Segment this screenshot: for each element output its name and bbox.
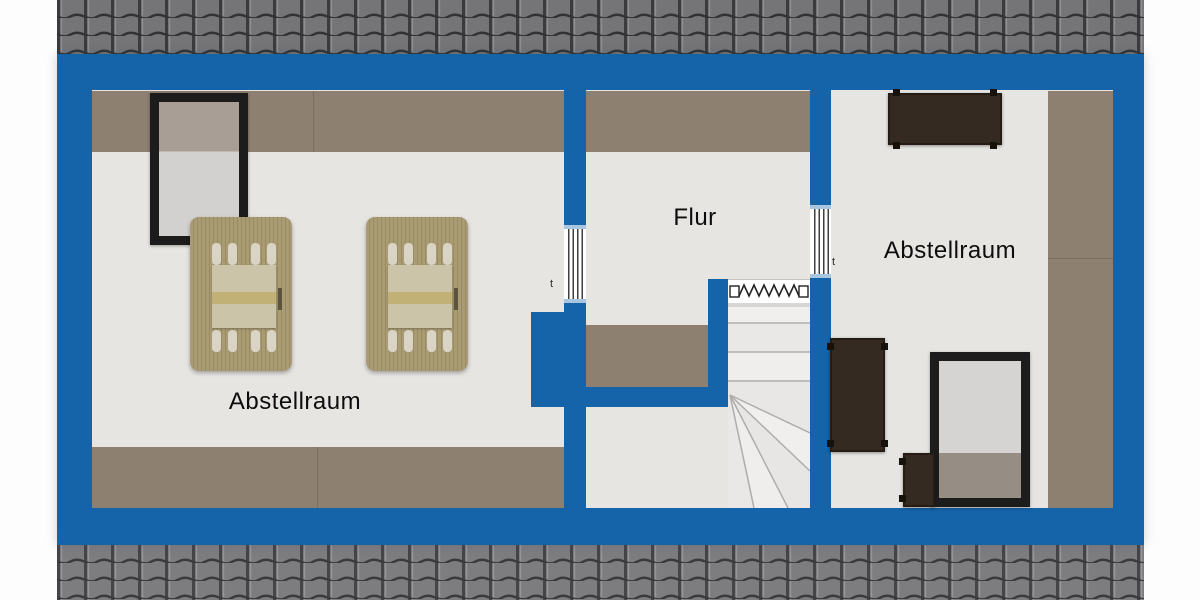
sloped-ceiling-strip-flur-top <box>586 91 810 152</box>
room-label-abstellraum-right: Abstellraum <box>850 237 1050 265</box>
room-label-flur: Flur <box>645 204 745 232</box>
wall-stair-left <box>708 279 728 407</box>
interior-window-left-icon <box>564 225 586 303</box>
interior-window-right-icon <box>810 205 831 278</box>
lounger-1 <box>190 217 292 371</box>
roof-tiles-bottom-icon <box>57 545 1144 600</box>
table-top <box>888 93 1002 145</box>
bench <box>830 338 885 452</box>
door-tick-right: t <box>832 257 835 267</box>
winder-stairs-icon <box>728 303 810 508</box>
lounger-2 <box>366 217 468 371</box>
wall-pier-block <box>531 312 586 407</box>
sloped-ceiling-strip-flur-lower <box>586 325 708 387</box>
skylight-window-right-icon <box>930 352 1030 507</box>
room-label-abstellraum-left: Abstellraum <box>195 388 395 416</box>
floor-plan-canvas: t t <box>0 0 1200 600</box>
sloped-ceiling-strip-left-bottom <box>92 447 564 508</box>
sloped-ceiling-strip-right <box>1048 91 1113 508</box>
roof-tiles-top-icon <box>57 0 1144 54</box>
door-tick-left: t <box>550 279 553 289</box>
side-table <box>903 453 935 507</box>
wall-flur-lower <box>586 387 728 407</box>
folding-door-icon <box>728 279 810 305</box>
